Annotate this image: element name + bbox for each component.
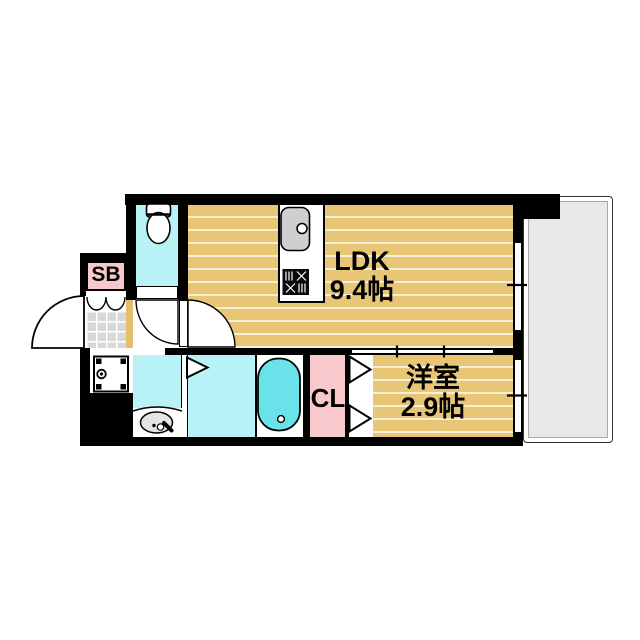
washbasin-counter	[133, 408, 182, 437]
western-room-label-block: 洋室 2.9帖	[382, 364, 484, 422]
western-room-area: 2.9帖	[382, 393, 484, 422]
wall-shoebox-top	[80, 253, 136, 261]
floor-plan: SB	[0, 0, 640, 640]
shoe-box-label: SB	[91, 263, 120, 286]
wall-toilet-ldk	[178, 205, 188, 300]
bathtub-area	[255, 355, 303, 437]
ldk-label-block: LDK 9.4帖	[312, 247, 412, 305]
shoebox-doors-zone	[86, 296, 126, 311]
ldk-western-sliding-door	[352, 348, 493, 355]
wall-bottom-left-block	[90, 393, 133, 446]
ldk-balcony-window	[513, 243, 523, 330]
wall-left-lower	[80, 348, 90, 446]
shoe-box: SB	[86, 261, 126, 291]
balcony-floor	[528, 201, 608, 438]
toilet-door-panel	[136, 286, 178, 299]
western-room-window	[513, 360, 523, 432]
bathroom-floor	[187, 355, 255, 437]
ldk-room-area: 9.4帖	[312, 276, 412, 305]
entrance-door-swing	[32, 296, 84, 348]
entrance-step	[126, 300, 133, 348]
wall-under-ldk	[165, 348, 352, 355]
ldk-room-name: LDK	[312, 247, 412, 276]
wall-right-upper	[513, 205, 523, 243]
toilet-door-swing	[136, 300, 178, 344]
toilet-room	[136, 205, 178, 286]
wall-toilet-left	[126, 194, 136, 300]
wall-bottom	[133, 437, 523, 446]
wall-right-mid	[513, 330, 523, 360]
western-room-name: 洋室	[382, 364, 484, 393]
wall-top	[125, 194, 523, 205]
wall-partition-right	[493, 348, 523, 355]
washing-machine-zone	[90, 348, 133, 393]
closet-label: CL	[302, 384, 354, 412]
entrance-tile	[86, 311, 126, 348]
ldk-door-panel	[179, 300, 188, 347]
